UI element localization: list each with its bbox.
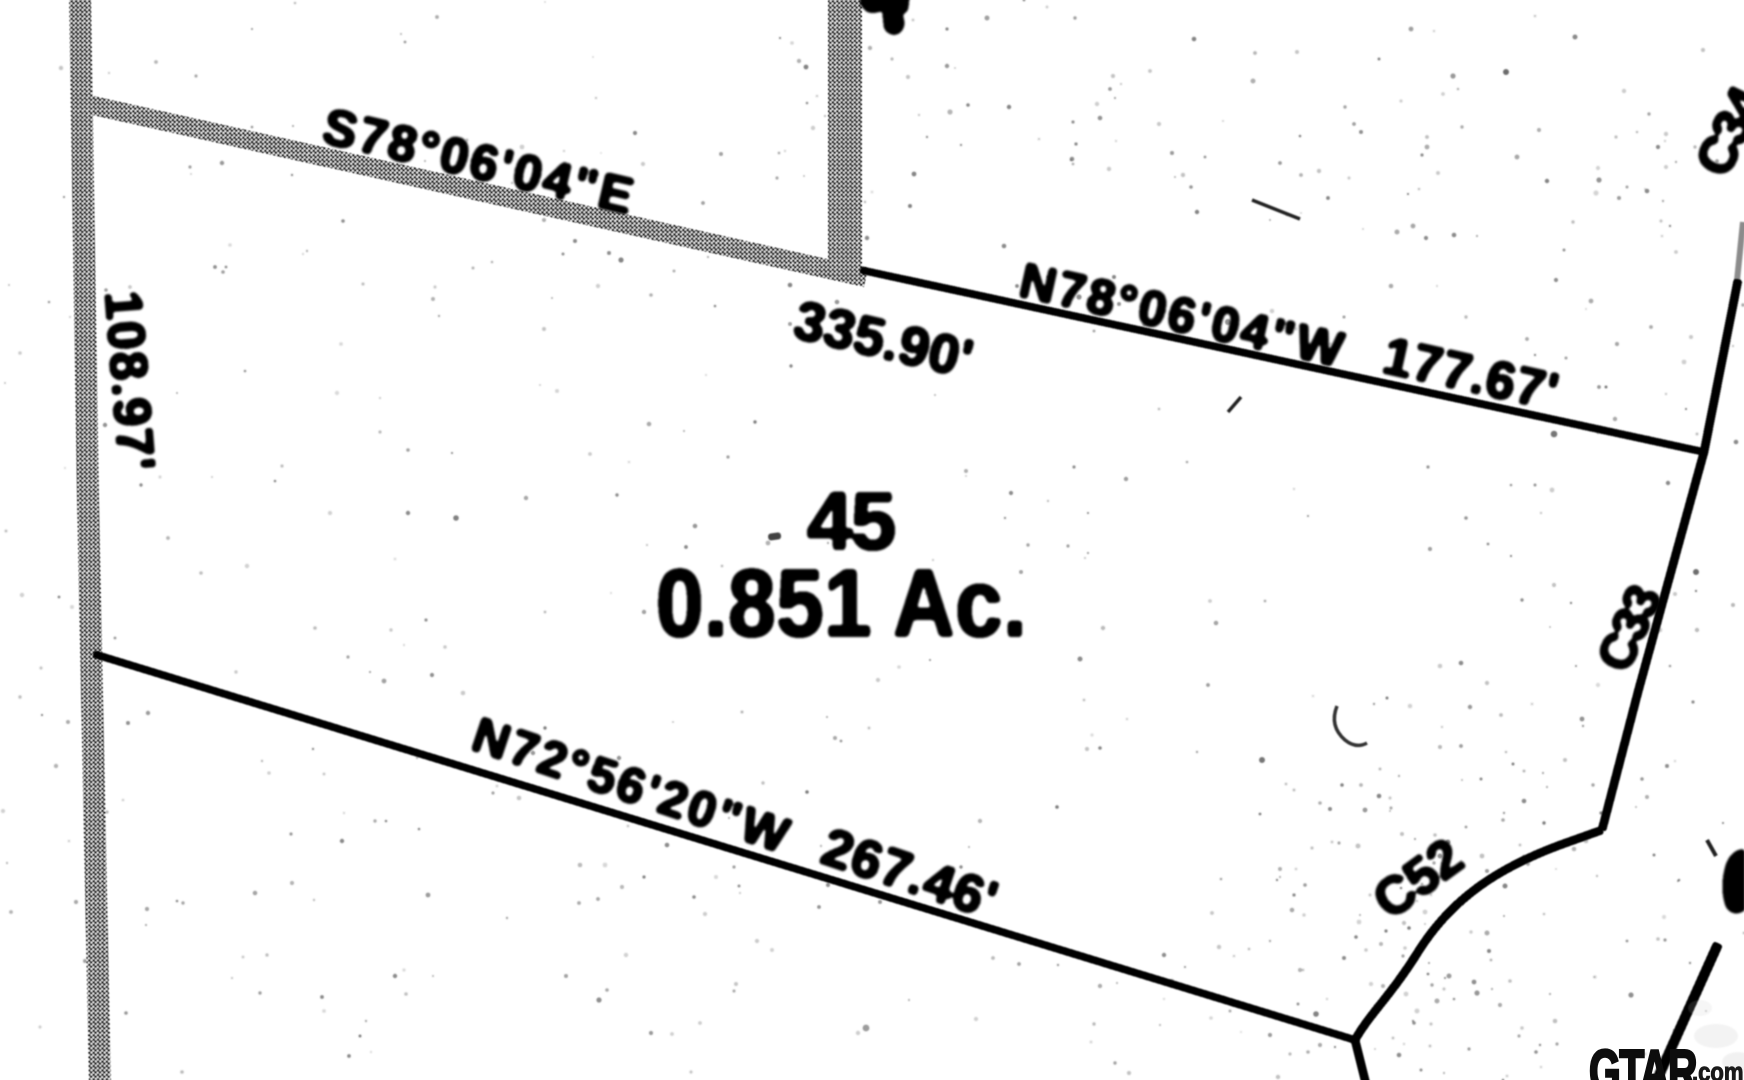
svg-text:.com: .com bbox=[1692, 1058, 1744, 1080]
svg-text:GTAR: GTAR bbox=[1589, 1038, 1697, 1080]
svg-text:0.851 Ac.: 0.851 Ac. bbox=[656, 550, 1027, 657]
